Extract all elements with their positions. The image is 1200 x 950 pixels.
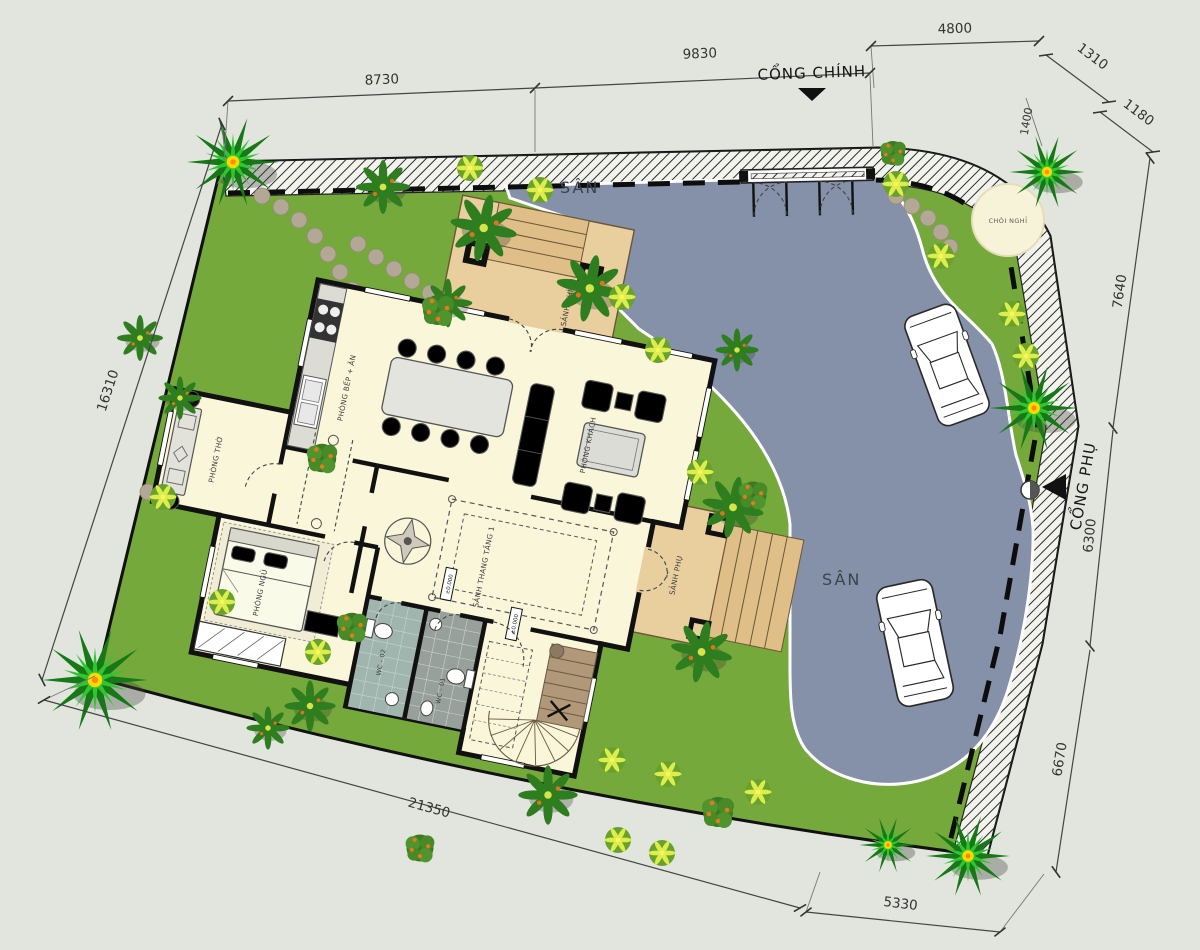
dim-7640: 7640: [1110, 273, 1131, 309]
main-gate-label: CỔNG CHÍNH: [757, 59, 866, 84]
tree-icon: [406, 835, 435, 863]
palm-icon: [356, 160, 410, 214]
yard-label-back: SÂN: [822, 570, 861, 589]
dim-9830: 9830: [682, 45, 717, 63]
dim-4800: 4800: [937, 20, 972, 37]
shrub-icon: [605, 827, 632, 853]
dim-21350: 21350: [406, 795, 452, 822]
palm-icon: [284, 680, 335, 731]
tree-icon: [702, 797, 734, 828]
site-plan-drawing: CHÒI NGHỈ SẢNH CHÍ: [0, 0, 1200, 950]
dim-1180: 1180: [1120, 96, 1157, 129]
dim-6670: 6670: [1049, 741, 1070, 777]
tree-icon: [739, 482, 768, 510]
dim-1310: 1310: [1074, 40, 1111, 73]
shrub-icon: [649, 840, 676, 866]
dim-8730: 8730: [364, 71, 399, 88]
main-gate-arrow-icon: [798, 88, 826, 101]
palm-icon: [246, 706, 289, 749]
palm-icon: [518, 765, 577, 824]
site-plan-canvas: CHÒI NGHỈ SẢNH CHÍ: [0, 0, 1200, 950]
dim-1400: 1400: [1018, 106, 1036, 136]
tree-icon: [307, 444, 337, 473]
yard-label-front: SÂN: [560, 178, 599, 197]
side-gate: [1021, 481, 1039, 499]
tree-icon: [422, 295, 454, 326]
palm-icon: [117, 315, 163, 361]
palm-icon: [158, 376, 201, 419]
tree-icon: [337, 613, 367, 642]
palm-icon: [715, 328, 758, 371]
gazebo-label: CHÒI NGHỈ: [989, 216, 1028, 225]
dim-16310: 16310: [94, 368, 122, 414]
tree-icon: [880, 141, 906, 166]
dim-5330: 5330: [882, 894, 918, 914]
